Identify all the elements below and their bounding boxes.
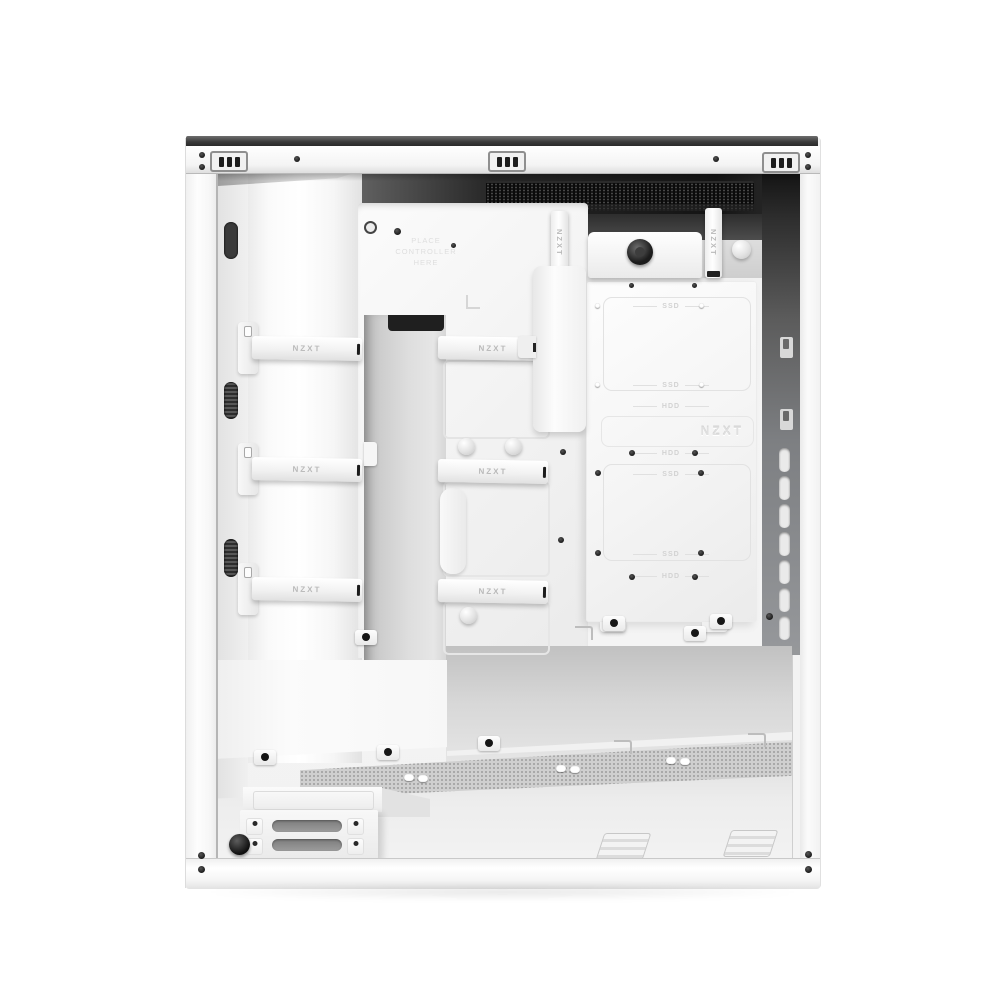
screw-hole <box>595 470 601 476</box>
rear-clip <box>780 409 793 430</box>
screw-hole <box>692 450 698 456</box>
expansion-vent-slot <box>779 616 790 640</box>
velcro-strap-vertical: NZXT <box>705 208 722 278</box>
right-frame-outer <box>800 138 821 888</box>
velcro-strap: NZXT <box>438 579 548 604</box>
mesh-screw <box>404 774 414 781</box>
velcro-strap: NZXT <box>252 457 362 482</box>
screw-hole <box>698 550 704 556</box>
mount-peg <box>732 240 751 259</box>
expansion-vent-slot <box>779 504 790 528</box>
screw-hole <box>629 450 635 456</box>
psu-box-slot <box>272 820 342 832</box>
cable-clip <box>710 614 732 629</box>
drop-shadow <box>195 884 810 900</box>
nzxt-embossed-logo: NZXT <box>701 424 744 438</box>
screw-hole <box>713 156 719 162</box>
screw-ring <box>364 221 377 234</box>
expansion-vent-slot <box>779 588 790 612</box>
standoff-hole <box>595 303 600 308</box>
cable-clip <box>684 626 706 641</box>
screw-hole <box>198 866 205 873</box>
cable-clip <box>377 745 399 760</box>
standoff-hole <box>699 382 704 387</box>
hdd-emboss-label: HDD <box>611 401 731 411</box>
screw-hole <box>629 283 634 288</box>
psu-rail <box>723 830 779 857</box>
screw-hole <box>692 283 697 288</box>
drive-tray-upper <box>603 297 751 391</box>
cable-tie-cutout <box>210 151 248 172</box>
case-top-cap <box>186 136 818 146</box>
standoff-hole <box>699 303 704 308</box>
strap-frame-tab <box>440 488 466 574</box>
cable-channel-opening <box>388 315 444 331</box>
expansion-vent-slot <box>779 476 790 500</box>
expansion-vent-slot <box>779 532 790 556</box>
front-frame-outer <box>185 138 219 888</box>
psu-box-tab <box>347 838 364 855</box>
thumbscrew-center <box>635 247 645 257</box>
screw-hole <box>805 152 811 158</box>
hook-clip <box>748 733 766 747</box>
cable-bar <box>533 266 586 432</box>
mesh-screw <box>680 758 690 765</box>
psu-rail <box>596 833 652 860</box>
mesh-screw <box>666 757 676 764</box>
front-vent-oval <box>224 382 238 419</box>
screw-hole <box>805 164 811 170</box>
screw-hole <box>766 613 773 620</box>
cable-clip <box>478 736 500 751</box>
psu-box-slot <box>272 839 342 851</box>
screw-hole <box>698 470 704 476</box>
mount-peg <box>460 607 477 624</box>
cable-bar-tick <box>533 343 536 352</box>
ssd-emboss-label: SSD <box>611 469 731 479</box>
screw-hole <box>558 537 564 543</box>
cable-clip <box>254 750 276 765</box>
rubber-post <box>505 438 522 455</box>
strap-frame <box>443 601 550 655</box>
corner-mark <box>466 295 480 309</box>
screw-hole <box>560 449 566 455</box>
thumbscrew <box>627 239 653 265</box>
ssd-emboss-label: SSD <box>611 380 731 390</box>
drive-tray-panel: SSD SSD HDD NZXT HDD SSD SSD HDD <box>586 281 757 622</box>
psu-box-top-inset <box>253 791 374 810</box>
standoff-hole <box>595 382 600 387</box>
screw-hole <box>805 866 812 873</box>
front-vent-oval <box>224 222 238 259</box>
channel-side-clip <box>364 442 377 466</box>
mesh-screw <box>418 775 428 782</box>
ssd-emboss-label: SSD <box>611 549 731 559</box>
psu-box-tab <box>246 818 263 835</box>
rear-clip <box>780 337 793 358</box>
screw-hole <box>199 164 205 170</box>
screw-hole <box>294 156 300 162</box>
velcro-strap-vertical: NZXT <box>551 211 568 274</box>
expansion-vent-slot <box>779 448 790 472</box>
cable-tie-cutout <box>488 151 526 172</box>
thumb-knob <box>229 834 250 855</box>
cable-clip <box>603 616 625 631</box>
screw-hole <box>451 243 456 248</box>
screw-hole <box>198 852 205 859</box>
screw-hole <box>805 851 812 858</box>
velcro-strap: NZXT <box>252 577 362 602</box>
product-photo: PLACE CONTROLLER HERE SSD SSD HDD NZXT <box>0 0 1000 1000</box>
expansion-vent-slot <box>779 560 790 584</box>
hook-clip <box>575 626 593 640</box>
screw-hole <box>629 574 635 580</box>
cable-clip <box>355 630 377 645</box>
nzxt-emboss-bar: NZXT <box>601 416 754 447</box>
screw-hole <box>199 152 205 158</box>
front-vent-oval <box>224 539 238 577</box>
velcro-strap: NZXT <box>252 336 362 361</box>
screw-hole <box>595 550 601 556</box>
ssd-emboss-label: SSD <box>611 301 731 311</box>
rubber-post <box>458 438 475 455</box>
screw-hole <box>692 574 698 580</box>
screw-hole <box>394 228 401 235</box>
mesh-screw <box>556 765 566 772</box>
cable-tie-cutout <box>762 152 800 173</box>
velcro-strap: NZXT <box>438 459 548 484</box>
psu-box-tab <box>347 818 364 835</box>
controller-note-text: PLACE CONTROLLER HERE <box>383 235 469 268</box>
mesh-screw <box>570 766 580 773</box>
hook-clip <box>614 740 632 754</box>
top-vent-mesh <box>486 181 754 205</box>
cable-channel-recess <box>364 315 446 665</box>
